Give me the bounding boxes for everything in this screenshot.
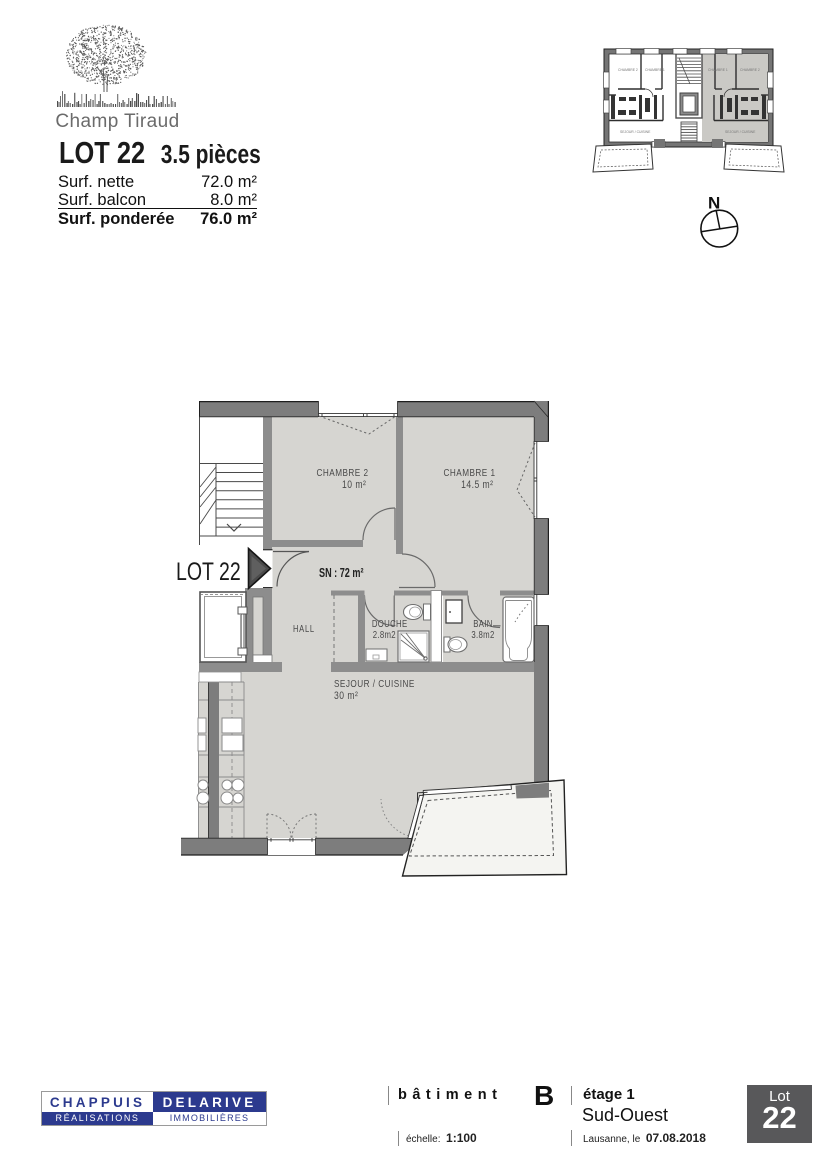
svg-text:CHAMBRE 1: CHAMBRE 1 bbox=[708, 68, 728, 72]
svg-text:SEJOUR / CUISINE: SEJOUR / CUISINE bbox=[725, 130, 756, 134]
svg-text:CHAMBRE 1: CHAMBRE 1 bbox=[645, 68, 665, 72]
svg-text:SEJOUR / CUISINE: SEJOUR / CUISINE bbox=[620, 130, 651, 134]
svg-text:CHAMBRE 2: CHAMBRE 2 bbox=[740, 68, 760, 72]
svg-text:N: N bbox=[708, 194, 720, 213]
svg-text:CHAMBRE 2: CHAMBRE 2 bbox=[618, 68, 638, 72]
